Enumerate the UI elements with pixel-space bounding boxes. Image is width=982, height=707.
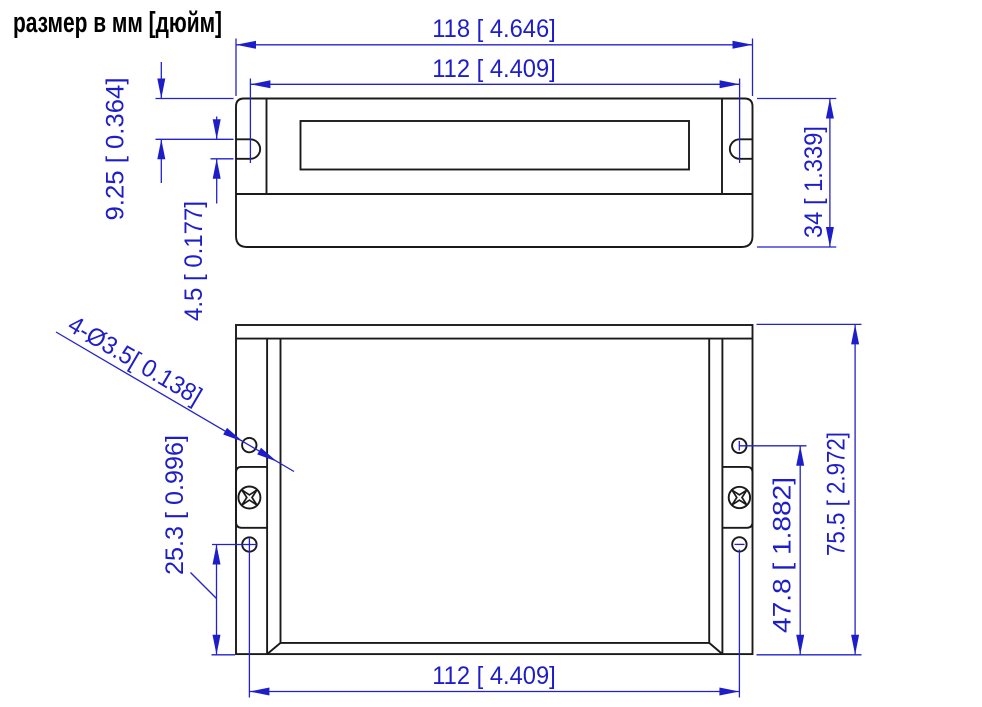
svg-text:118 [ 4.646]: 118 [ 4.646] <box>432 15 556 43</box>
svg-text:размер в мм [дюйм]: размер в мм [дюйм] <box>13 7 222 39</box>
svg-text:112 [ 4.409]: 112 [ 4.409] <box>432 55 556 83</box>
svg-text:4.5 [ 0.177]: 4.5 [ 0.177] <box>180 201 208 321</box>
svg-text:34 [ 1.339]: 34 [ 1.339] <box>800 126 828 238</box>
svg-text:9.25 [ 0.364]: 9.25 [ 0.364] <box>102 78 130 221</box>
svg-text:25.3 [ 0.996]: 25.3 [ 0.996] <box>161 435 189 575</box>
svg-text:75.5 [ 2.972]: 75.5 [ 2.972] <box>823 432 851 556</box>
svg-text:47.8 [ 1.882]: 47.8 [ 1.882] <box>769 477 797 633</box>
svg-text:112 [ 4.409]: 112 [ 4.409] <box>432 662 556 690</box>
